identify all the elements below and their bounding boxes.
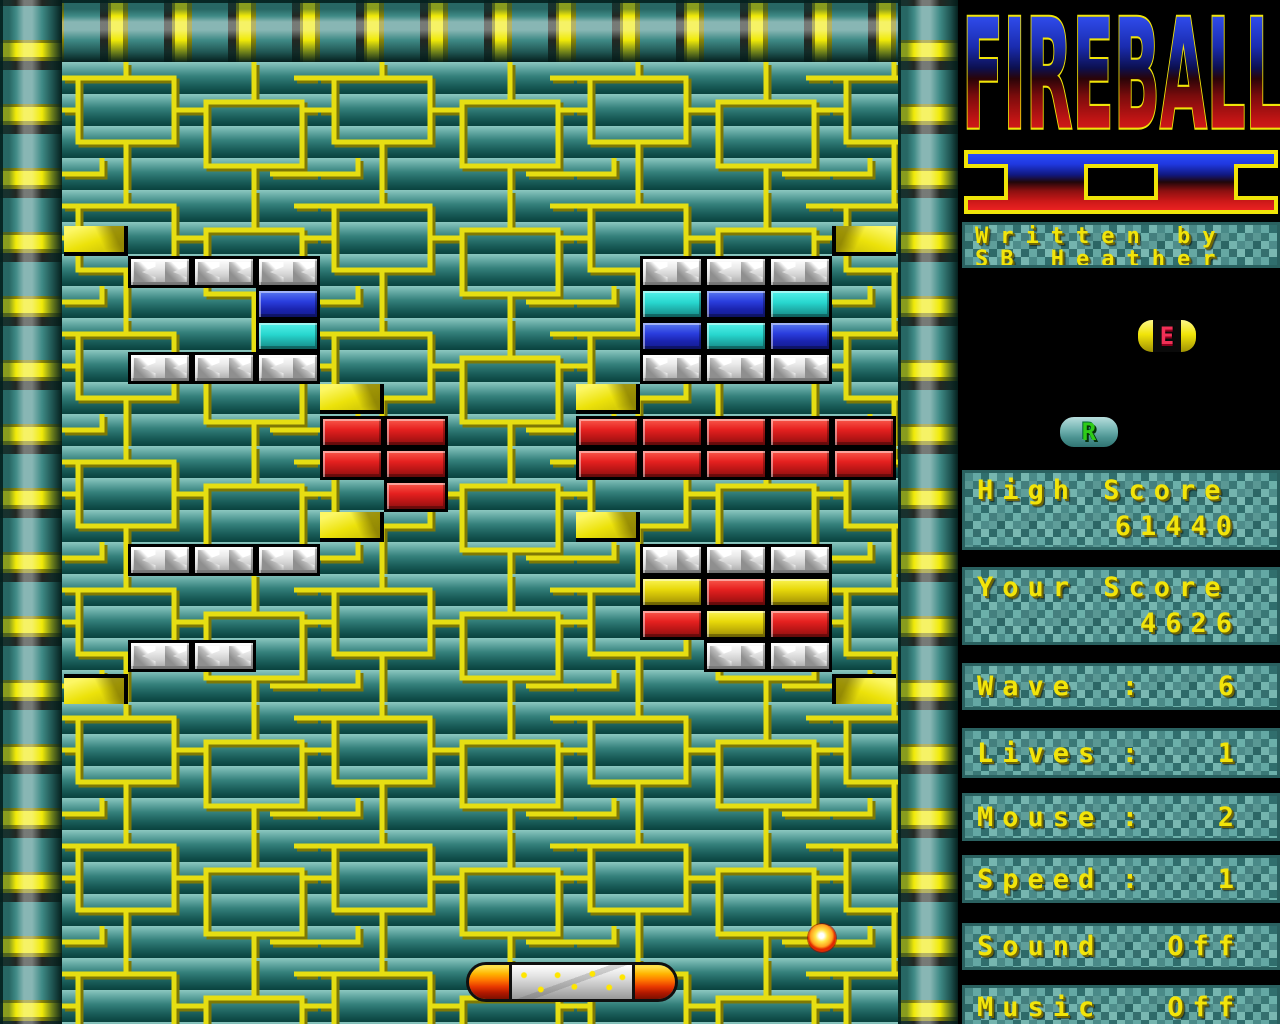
- brick-chevron-icon: [198, 358, 220, 378]
- brick-chevron-icon: [293, 358, 315, 378]
- brick-white: [704, 352, 768, 384]
- capsule-cap: [1138, 320, 1153, 352]
- brick-red: [768, 448, 832, 480]
- brick-white: [640, 544, 704, 576]
- brick-red: [384, 448, 448, 480]
- stat-value: 6: [1147, 671, 1277, 702]
- credit-panel: Written by SB Heather: [962, 222, 1280, 268]
- brick-chevron-icon: [262, 358, 284, 378]
- brick-chevron-icon: [710, 358, 732, 378]
- brick-chevron-icon: [229, 358, 251, 378]
- brick-chevron-icon: [198, 550, 220, 570]
- corner-wedge: [576, 384, 640, 414]
- brick-chevron-icon: [805, 262, 827, 282]
- brick-white: [128, 640, 192, 672]
- your-score-panel: Your Score 4626: [962, 567, 1280, 645]
- brick-red: [576, 448, 640, 480]
- stat-separator: :: [1122, 864, 1147, 895]
- brick-chevron-icon: [229, 262, 251, 282]
- brick-chevron-icon: [165, 550, 187, 570]
- stat-panel-music: MusicOff: [962, 985, 1280, 1024]
- stat-value: Off: [1147, 931, 1277, 962]
- stat-label: Lives: [965, 738, 1103, 769]
- brick-chevron-icon: [229, 646, 251, 666]
- brick-chevron-icon: [677, 262, 699, 282]
- high-score-panel: High Score 61440: [962, 470, 1280, 550]
- brick-red: [384, 480, 448, 512]
- brick-chevron-icon: [262, 550, 284, 570]
- brick-chevron-icon: [710, 550, 732, 570]
- brick-yellow: [640, 576, 704, 608]
- brick-chevron-icon: [134, 262, 156, 282]
- brick-chevron-icon: [774, 358, 796, 378]
- logo-numeral-II: [966, 152, 1276, 212]
- brick-red: [704, 448, 768, 480]
- capsule-cap: [1181, 320, 1196, 352]
- brick-chevron-icon: [774, 262, 796, 282]
- brick-white: [768, 352, 832, 384]
- corner-wedge: [576, 512, 640, 542]
- brick-chevron-icon: [646, 358, 668, 378]
- stat-value: Off: [1147, 992, 1277, 1023]
- playfield-background: [62, 62, 898, 1024]
- sidebar: FIREBALL Written by SB Heather High Scor…: [958, 0, 1280, 1024]
- corner-wedge: [64, 674, 128, 704]
- credit-line-1: Written by: [965, 225, 1277, 248]
- brick-cyan: [704, 320, 768, 352]
- stat-separator: :: [1122, 738, 1147, 769]
- corner-wedge: [832, 226, 896, 256]
- brick-white: [704, 544, 768, 576]
- brick-chevron-icon: [805, 358, 827, 378]
- paddle[interactable]: [466, 962, 678, 1002]
- your-score-label: Your Score: [965, 570, 1277, 606]
- brick-red: [320, 416, 384, 448]
- brick-chevron-icon: [805, 550, 827, 570]
- paddle-right-cap: [635, 965, 675, 999]
- corner-wedge: [320, 384, 384, 414]
- border-left-pipe: [0, 0, 62, 1024]
- stat-panel-wave: Wave:6: [962, 663, 1280, 710]
- brick-white: [768, 256, 832, 288]
- brick-chevron-icon: [741, 358, 763, 378]
- brick-red: [320, 448, 384, 480]
- brick-chevron-icon: [134, 550, 156, 570]
- brick-white: [256, 256, 320, 288]
- brick-white: [128, 256, 192, 288]
- brick-blue: [640, 320, 704, 352]
- stat-separator: :: [1122, 802, 1147, 833]
- brick-chevron-icon: [198, 262, 220, 282]
- powerup-capsule-e: E: [1136, 318, 1198, 354]
- high-score-value: 61440: [965, 509, 1277, 545]
- corner-wedge: [832, 674, 896, 704]
- game-screen: FIREBALL Written by SB Heather High Scor…: [0, 0, 1280, 1024]
- powerup-letter: R: [1082, 418, 1096, 446]
- brick-red: [768, 416, 832, 448]
- brick-chevron-icon: [646, 550, 668, 570]
- brick-white: [192, 256, 256, 288]
- brick-chevron-icon: [741, 646, 763, 666]
- brick-red: [832, 416, 896, 448]
- brick-cyan: [256, 320, 320, 352]
- stat-label: Wave: [965, 671, 1078, 702]
- brick-chevron-icon: [134, 358, 156, 378]
- stat-panel-lives: Lives:1: [962, 728, 1280, 778]
- credit-line-2: SB Heather: [965, 248, 1277, 268]
- brick-chevron-icon: [677, 358, 699, 378]
- brick-white: [704, 640, 768, 672]
- brick-red: [704, 576, 768, 608]
- brick-chevron-icon: [165, 646, 187, 666]
- stat-panel-mouse: Mouse:2: [962, 793, 1280, 841]
- brick-blue: [768, 320, 832, 352]
- border-top-pipe: [0, 0, 958, 62]
- stat-value: 2: [1147, 802, 1277, 833]
- stat-label: Mouse: [965, 802, 1103, 833]
- paddle-body: [509, 965, 635, 999]
- brick-chevron-icon: [805, 646, 827, 666]
- brick-chevron-icon: [774, 550, 796, 570]
- brick-chevron-icon: [710, 262, 732, 282]
- stat-panel-sound: SoundOff: [962, 923, 1280, 970]
- brick-chevron-icon: [677, 550, 699, 570]
- stat-label: Speed: [965, 864, 1103, 895]
- brick-red: [768, 608, 832, 640]
- paddle-left-cap: [469, 965, 509, 999]
- brick-chevron-icon: [165, 358, 187, 378]
- brick-yellow: [768, 576, 832, 608]
- stat-value: 1: [1147, 738, 1277, 769]
- brick-white: [192, 640, 256, 672]
- playfield[interactable]: [62, 62, 898, 1024]
- border-right-pipe: [898, 0, 958, 1024]
- brick-chevron-icon: [229, 550, 251, 570]
- brick-chevron-icon: [741, 550, 763, 570]
- brick-chevron-icon: [646, 262, 668, 282]
- brick-chevron-icon: [774, 646, 796, 666]
- brick-chevron-icon: [293, 262, 315, 282]
- brick-blue: [704, 288, 768, 320]
- brick-chevron-icon: [262, 262, 284, 282]
- brick-cyan: [640, 288, 704, 320]
- powerup-letter: E: [1153, 320, 1181, 352]
- brick-white: [768, 640, 832, 672]
- brick-chevron-icon: [165, 262, 187, 282]
- brick-white: [256, 352, 320, 384]
- brick-cyan: [768, 288, 832, 320]
- brick-white: [192, 352, 256, 384]
- brick-blue: [256, 288, 320, 320]
- brick-red: [384, 416, 448, 448]
- brick-red: [576, 416, 640, 448]
- corner-wedge: [64, 226, 128, 256]
- fireball-logo: FIREBALL: [962, 6, 1280, 216]
- brick-white: [640, 256, 704, 288]
- corner-wedge: [320, 512, 384, 542]
- brick-white: [768, 544, 832, 576]
- stat-label: Music: [965, 992, 1103, 1023]
- brick-white: [192, 544, 256, 576]
- brick-chevron-icon: [293, 550, 315, 570]
- stat-value: 1: [1147, 864, 1277, 895]
- stat-label: Sound: [965, 931, 1103, 962]
- brick-chevron-icon: [710, 646, 732, 666]
- brick-chevron-icon: [134, 646, 156, 666]
- brick-yellow: [704, 608, 768, 640]
- brick-red: [704, 416, 768, 448]
- high-score-label: High Score: [965, 473, 1277, 509]
- brick-red: [832, 448, 896, 480]
- brick-white: [256, 544, 320, 576]
- brick-red: [640, 448, 704, 480]
- brick-white: [128, 352, 192, 384]
- ball: [808, 924, 836, 952]
- brick-red: [640, 416, 704, 448]
- logo-text: FIREBALL: [962, 6, 1280, 164]
- brick-chevron-icon: [741, 262, 763, 282]
- brick-red: [640, 608, 704, 640]
- your-score-value: 4626: [965, 606, 1277, 642]
- brick-white: [704, 256, 768, 288]
- brick-chevron-icon: [198, 646, 220, 666]
- stat-panel-speed: Speed:1: [962, 855, 1280, 903]
- brick-white: [640, 352, 704, 384]
- stat-separator: :: [1122, 671, 1147, 702]
- powerup-capsule-r: R: [1058, 415, 1120, 449]
- brick-white: [128, 544, 192, 576]
